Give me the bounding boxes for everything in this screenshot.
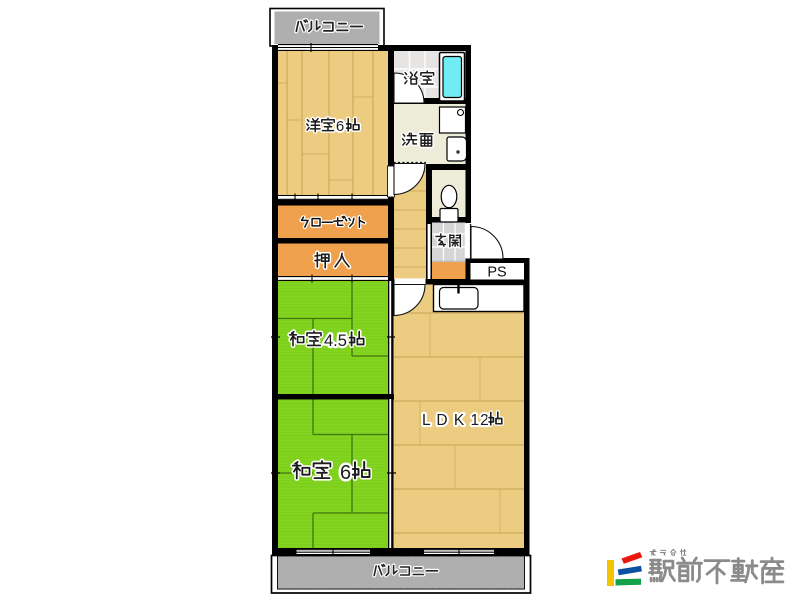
svg-text:PS: PS	[487, 265, 506, 281]
svg-text:6: 6	[336, 118, 344, 135]
svg-text:L D K 12: L D K 12	[422, 412, 490, 429]
svg-text:6: 6	[340, 462, 351, 484]
svg-text:4.5: 4.5	[324, 332, 347, 350]
